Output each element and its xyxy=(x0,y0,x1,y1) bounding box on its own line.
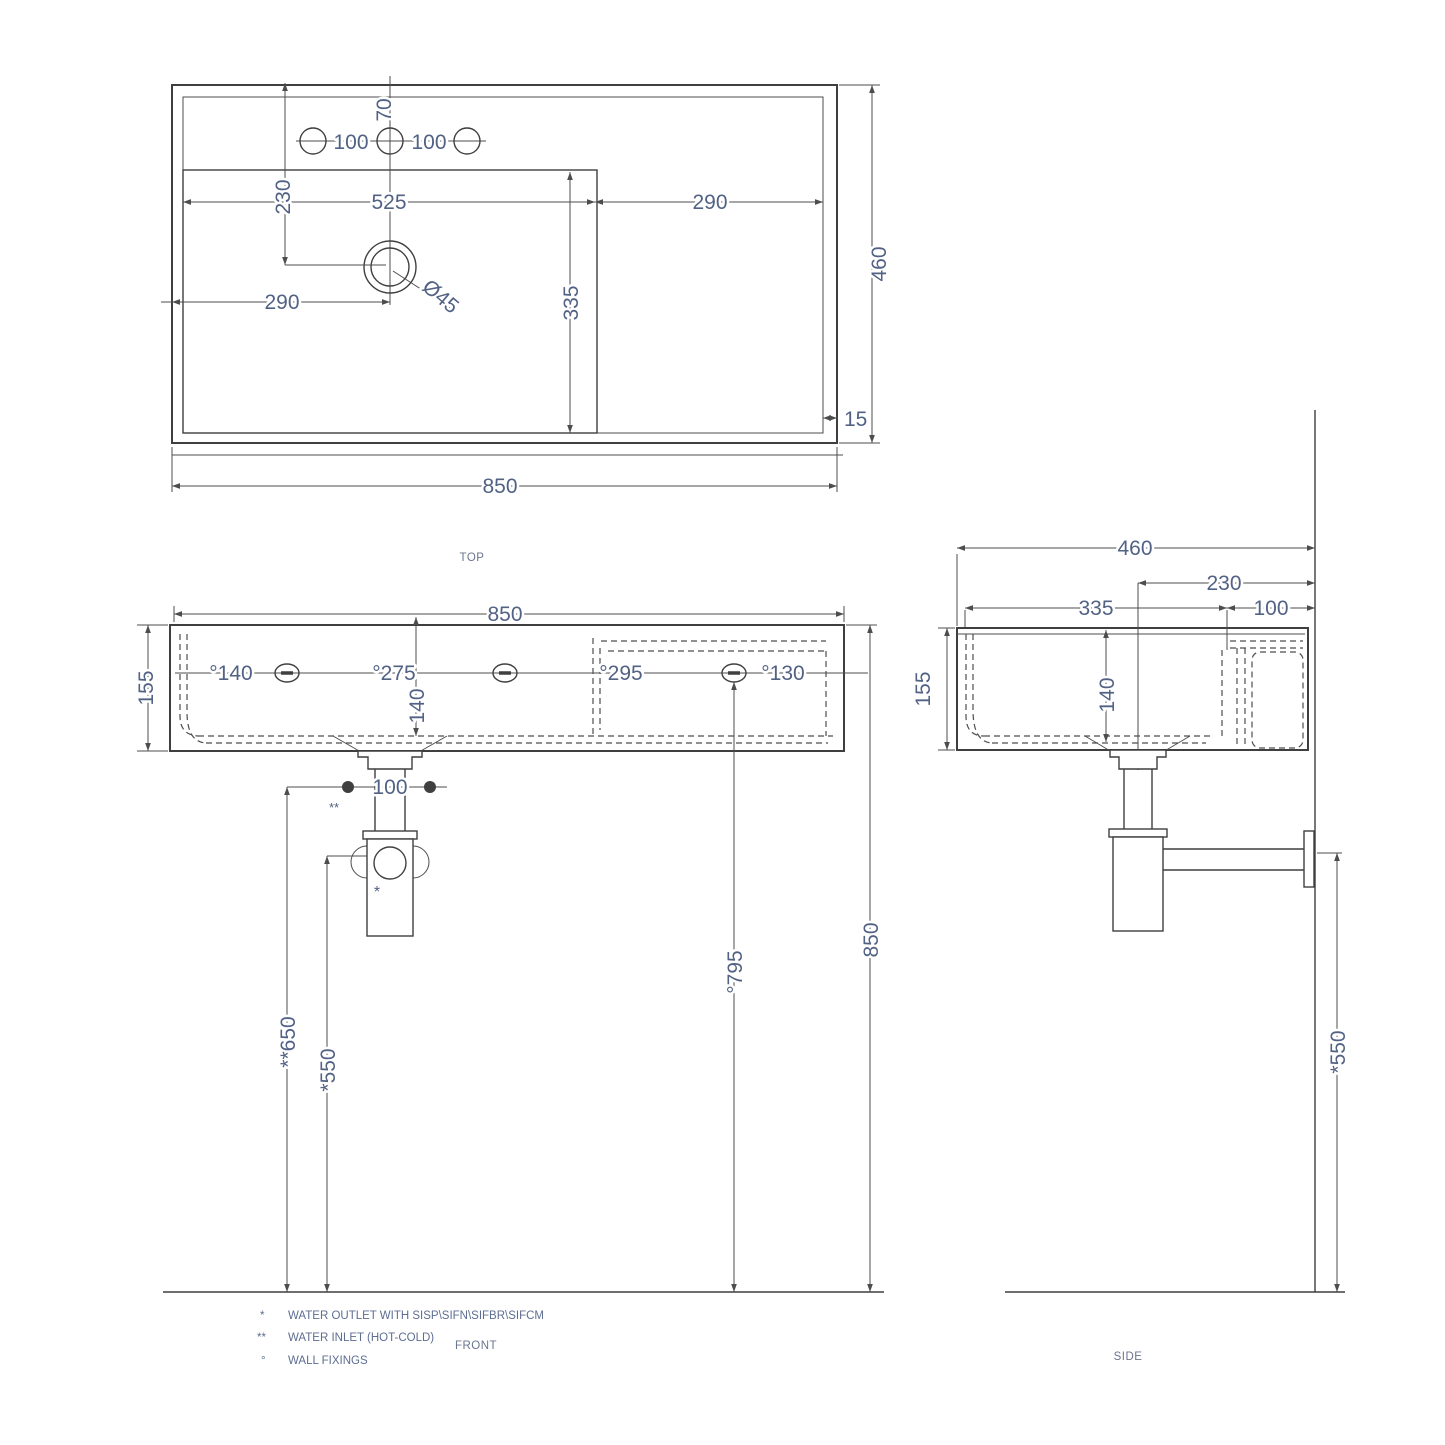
washbasin-technical-drawing: 70 100 100 230 525 290 290 335 Ø45 15 46… xyxy=(0,0,1445,1445)
dim-top-drain-offset-top: 230 xyxy=(272,179,295,214)
dim-side-overall-depth: 460 xyxy=(1117,537,1152,560)
dim-top-bowl-depth: 335 xyxy=(560,285,583,320)
dim-front-outlet-height: *550 xyxy=(317,1048,340,1091)
dim-top-overall-depth: 460 xyxy=(868,246,891,281)
dim-front-height: 155 xyxy=(135,670,158,705)
legend-marker-outlet: * xyxy=(260,1310,265,1322)
dim-side-bowl-depth: 335 xyxy=(1078,597,1113,620)
dim-top-holes-offset: 70 xyxy=(373,98,396,121)
top-view-label: TOP xyxy=(460,552,485,564)
dim-side-outlet-height: *550 xyxy=(1327,1030,1350,1073)
legend-marker-fixings: ° xyxy=(261,1355,266,1367)
side-view: 460 230 335 100 155 140 *550 SIDE xyxy=(912,410,1350,1363)
front-basin-outline xyxy=(170,625,844,751)
dim-front-inlet-height: **650 xyxy=(277,1016,300,1067)
inlet-marker: ** xyxy=(329,800,339,815)
dim-front-fixing-height: °795 xyxy=(724,950,747,993)
trap-cap-front xyxy=(363,831,417,839)
water-inlet-right xyxy=(424,781,436,793)
trap-body-side xyxy=(1113,837,1163,931)
trap-cap-side xyxy=(1109,829,1167,837)
back-ledge-void-hidden xyxy=(1252,652,1303,748)
legend-text-inlet: WATER INLET (HOT-COLD) xyxy=(288,1332,434,1344)
side-view-label: SIDE xyxy=(1114,1351,1143,1363)
front-view: 850 155 °140 °275 °295 °130 140 100 ** *… xyxy=(135,603,884,1352)
dim-top-overall-width: 850 xyxy=(482,475,517,498)
legend: * WATER OUTLET WITH SISP\SIFN\SIFBR\SIFC… xyxy=(257,1310,544,1367)
dim-top-drain-offset-left: 290 xyxy=(264,291,299,314)
dim-front-inlet-spacing: 100 xyxy=(372,776,407,799)
dim-top-drain-diameter: Ø45 xyxy=(418,275,463,318)
dim-front-fixing-center: °275 xyxy=(372,662,415,685)
dim-top-hole-spacing-left: 100 xyxy=(333,131,368,154)
top-outer-rim xyxy=(172,85,837,443)
dim-side-drain-offset-wall: 230 xyxy=(1206,572,1241,595)
trap-outlet-front xyxy=(374,847,406,879)
dim-top-rim-inset: 15 xyxy=(844,408,867,431)
outlet-marker: * xyxy=(374,884,380,901)
top-inner-rim xyxy=(183,97,823,433)
dim-top-deck-width: 290 xyxy=(692,191,727,214)
drain-fitting-side xyxy=(1110,750,1166,769)
bowl-wall-hidden xyxy=(180,634,198,736)
water-inlet-left xyxy=(342,781,354,793)
drain-fitting-front xyxy=(358,751,422,769)
dim-top-hole-spacing-right: 100 xyxy=(411,131,446,154)
legend-text-fixings: WALL FIXINGS xyxy=(288,1355,368,1367)
legend-marker-inlet: ** xyxy=(257,1332,266,1344)
dim-side-fixing-offset-wall: 100 xyxy=(1253,597,1288,620)
dim-side-height: 155 xyxy=(912,671,935,706)
technical-drawing-sheet: 70 100 100 230 525 290 290 335 Ø45 15 46… xyxy=(0,0,1445,1445)
dim-front-overall-width: 850 xyxy=(487,603,522,626)
dim-side-bowl-inner-height: 140 xyxy=(1096,677,1119,712)
top-view: 70 100 100 230 525 290 290 335 Ø45 15 46… xyxy=(161,76,891,564)
dim-front-fixing-right: °130 xyxy=(761,662,804,685)
front-view-label: FRONT xyxy=(455,1340,497,1352)
wall-flange xyxy=(1304,831,1314,887)
dim-top-bowl-width: 525 xyxy=(371,191,406,214)
side-basin-outline xyxy=(957,628,1308,750)
dim-front-recess-width: °295 xyxy=(599,662,642,685)
dim-front-bowl-inner-height: 140 xyxy=(406,688,429,723)
legend-text-outlet: WATER OUTLET WITH SISP\SIFN\SIFBR\SIFCM xyxy=(288,1310,544,1322)
dim-front-fixing-left: °140 xyxy=(209,662,252,685)
dim-front-rim-height: 850 xyxy=(860,922,883,957)
